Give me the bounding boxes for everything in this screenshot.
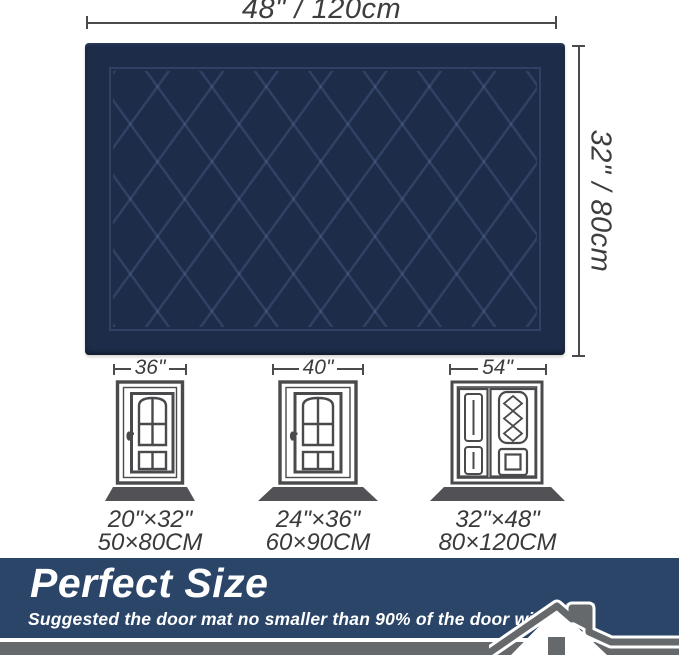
house-icon xyxy=(489,593,679,655)
door-width-dimension: 36" xyxy=(113,360,187,378)
door-mat-shape xyxy=(430,487,565,501)
door-option-3: 54" 32"×48" 80×120CM xyxy=(430,360,565,554)
side-height-label: 32" / 80cm xyxy=(584,130,617,273)
mat-size-inches: 32"×48" xyxy=(455,508,539,531)
mat-size-inches: 24"×36" xyxy=(276,508,360,531)
side-dimension-tick-bottom xyxy=(572,355,585,357)
double-door-icon xyxy=(430,379,565,502)
mat-size-cm: 50×80CM xyxy=(98,531,203,554)
mat-size-cm: 80×120CM xyxy=(438,531,556,554)
door-width-label: 36" xyxy=(135,356,166,380)
door-mat-shape xyxy=(105,487,195,501)
door-option-2: 40" 24"×36" 60×90CM xyxy=(258,360,378,554)
product-infographic: 48" / 120cm 32" / 80cm 36" xyxy=(0,0,679,655)
door-option-1: 36" 20"×32" 50×80CM xyxy=(105,360,195,554)
mat-size-cm: 60×90CM xyxy=(266,531,371,554)
door-width-dimension: 54" xyxy=(449,360,547,378)
banner-title: Perfect Size xyxy=(30,560,268,607)
single-door-icon xyxy=(105,379,195,502)
door-width-label: 54" xyxy=(482,356,513,380)
door-mat-image xyxy=(85,43,565,355)
door-mat-shape xyxy=(258,487,378,501)
side-dimension-line xyxy=(578,45,580,357)
mat-size-inches: 20"×32" xyxy=(108,508,192,531)
door-width-label: 40" xyxy=(303,356,334,380)
single-door-icon xyxy=(258,379,378,502)
top-dimension-tick-left xyxy=(86,16,88,29)
side-dimension-tick-top xyxy=(572,45,585,47)
banner-subtitle: Suggested the door mat no smaller than 9… xyxy=(28,609,566,630)
house-door xyxy=(548,637,565,655)
door-width-dimension: 40" xyxy=(272,360,364,378)
top-dimension-tick-right xyxy=(555,16,557,29)
mat-border-frame xyxy=(109,67,541,331)
top-dimension-line xyxy=(86,22,557,24)
